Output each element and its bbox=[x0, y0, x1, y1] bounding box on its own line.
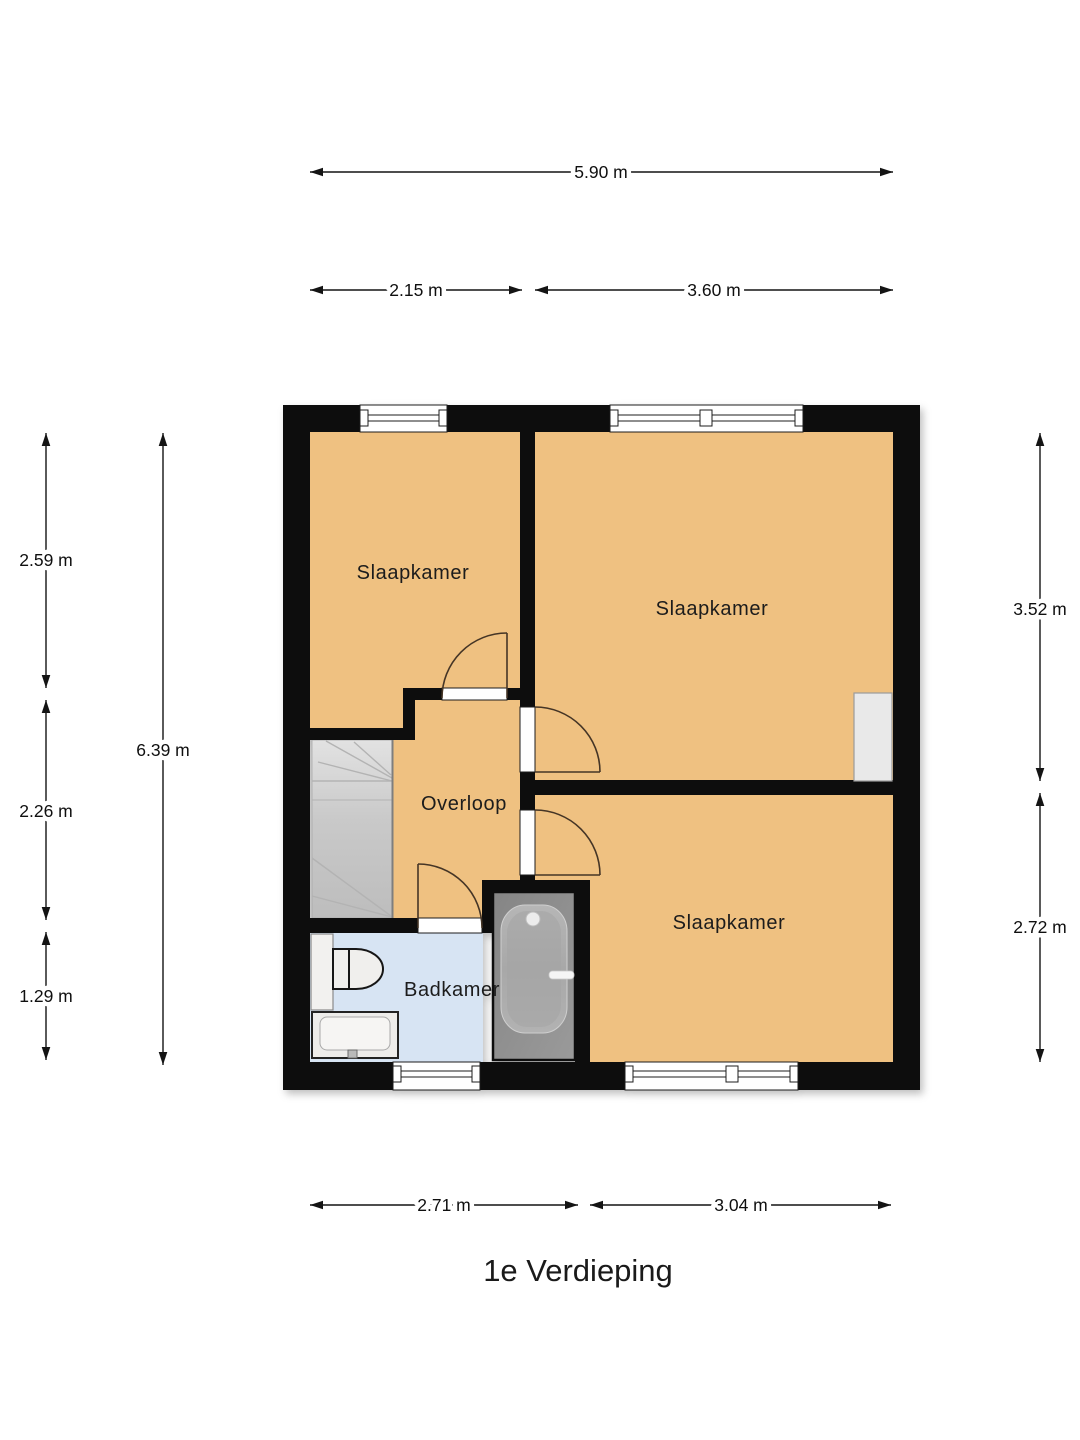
door-opening-bathroom bbox=[418, 918, 482, 933]
window-bedroom-top-right bbox=[610, 405, 803, 432]
dimension-top-right-width: 3.60 m bbox=[535, 280, 893, 300]
window-bathroom-bottom bbox=[393, 1062, 480, 1090]
vanity-cabinet bbox=[311, 934, 333, 1010]
wall-outer-bottom bbox=[283, 1062, 920, 1090]
bathtub-drain bbox=[526, 912, 540, 926]
svg-text:1.29 m: 1.29 m bbox=[19, 986, 73, 1006]
svg-text:3.52 m: 3.52 m bbox=[1013, 599, 1067, 619]
window-bedroom-top-left bbox=[360, 405, 447, 432]
svg-text:2.15 m: 2.15 m bbox=[389, 280, 443, 300]
bathtub bbox=[493, 892, 575, 1060]
sink-tap bbox=[348, 1050, 357, 1058]
dimension-bottom-left-width: 2.71 m bbox=[310, 1195, 578, 1215]
wall-right-bedrooms-divider bbox=[520, 780, 893, 795]
room-label-bedroom-bottom-right: Slaapkamer bbox=[673, 912, 786, 934]
dimension-left-lower: 1.29 m bbox=[19, 932, 73, 1060]
door-opening-bedroom-bottom-right bbox=[520, 810, 535, 875]
svg-text:6.39 m: 6.39 m bbox=[136, 740, 190, 760]
room-label-bathroom: Badkamer bbox=[404, 979, 500, 1001]
window-bedroom-bottom-right bbox=[625, 1062, 798, 1090]
stairs bbox=[312, 740, 393, 918]
svg-text:3.04 m: 3.04 m bbox=[714, 1195, 768, 1215]
wall-tub-niche-right bbox=[575, 880, 590, 1062]
svg-text:5.90 m: 5.90 m bbox=[574, 162, 628, 182]
dimension-left-total: 6.39 m bbox=[136, 433, 190, 1065]
svg-text:3.60 m: 3.60 m bbox=[687, 280, 741, 300]
dimension-top-left-width: 2.15 m bbox=[310, 280, 522, 300]
sink bbox=[312, 1012, 398, 1058]
room-label-bedroom-top-left: Slaapkamer bbox=[357, 562, 470, 584]
dimension-left-middle: 2.26 m bbox=[19, 700, 73, 920]
dimension-right-upper: 3.52 m bbox=[1013, 433, 1067, 781]
dimension-top-total: 5.90 m bbox=[310, 162, 893, 182]
dimension-left-upper: 2.59 m bbox=[19, 433, 73, 688]
wall-bedroom-tl-bottom-left bbox=[310, 728, 403, 740]
svg-text:2.71 m: 2.71 m bbox=[417, 1195, 471, 1215]
svg-text:2.26 m: 2.26 m bbox=[19, 801, 73, 821]
wall-outer-right bbox=[893, 405, 920, 1090]
door-opening-bedroom-top-left bbox=[442, 688, 507, 700]
building: Slaapkamer Slaapkamer Slaapkamer Overloo… bbox=[283, 405, 920, 1090]
room-fills bbox=[310, 432, 893, 1062]
bathtub-handle bbox=[549, 971, 574, 979]
wall-tub-niche-left bbox=[482, 880, 493, 933]
wall-outer-left bbox=[283, 405, 310, 1090]
door-opening-bedroom-top-right bbox=[520, 707, 535, 772]
dimension-bottom-right-width: 3.04 m bbox=[590, 1195, 891, 1215]
room-label-bedroom-top-right: Slaapkamer bbox=[656, 598, 769, 620]
dimension-right-lower: 2.72 m bbox=[1013, 793, 1067, 1062]
wall-bathroom-top bbox=[310, 918, 418, 933]
svg-text:2.72 m: 2.72 m bbox=[1013, 917, 1067, 937]
room-label-landing: Overloop bbox=[421, 793, 507, 815]
floor-plan-canvas: Slaapkamer Slaapkamer Slaapkamer Overloo… bbox=[0, 0, 1080, 1440]
floor-plan-page: Slaapkamer Slaapkamer Slaapkamer Overloo… bbox=[0, 0, 1080, 1440]
plan-title: 1e Verdieping bbox=[483, 1253, 673, 1288]
svg-text:2.59 m: 2.59 m bbox=[19, 550, 73, 570]
wall-recess bbox=[854, 693, 892, 781]
toilet bbox=[333, 949, 383, 989]
